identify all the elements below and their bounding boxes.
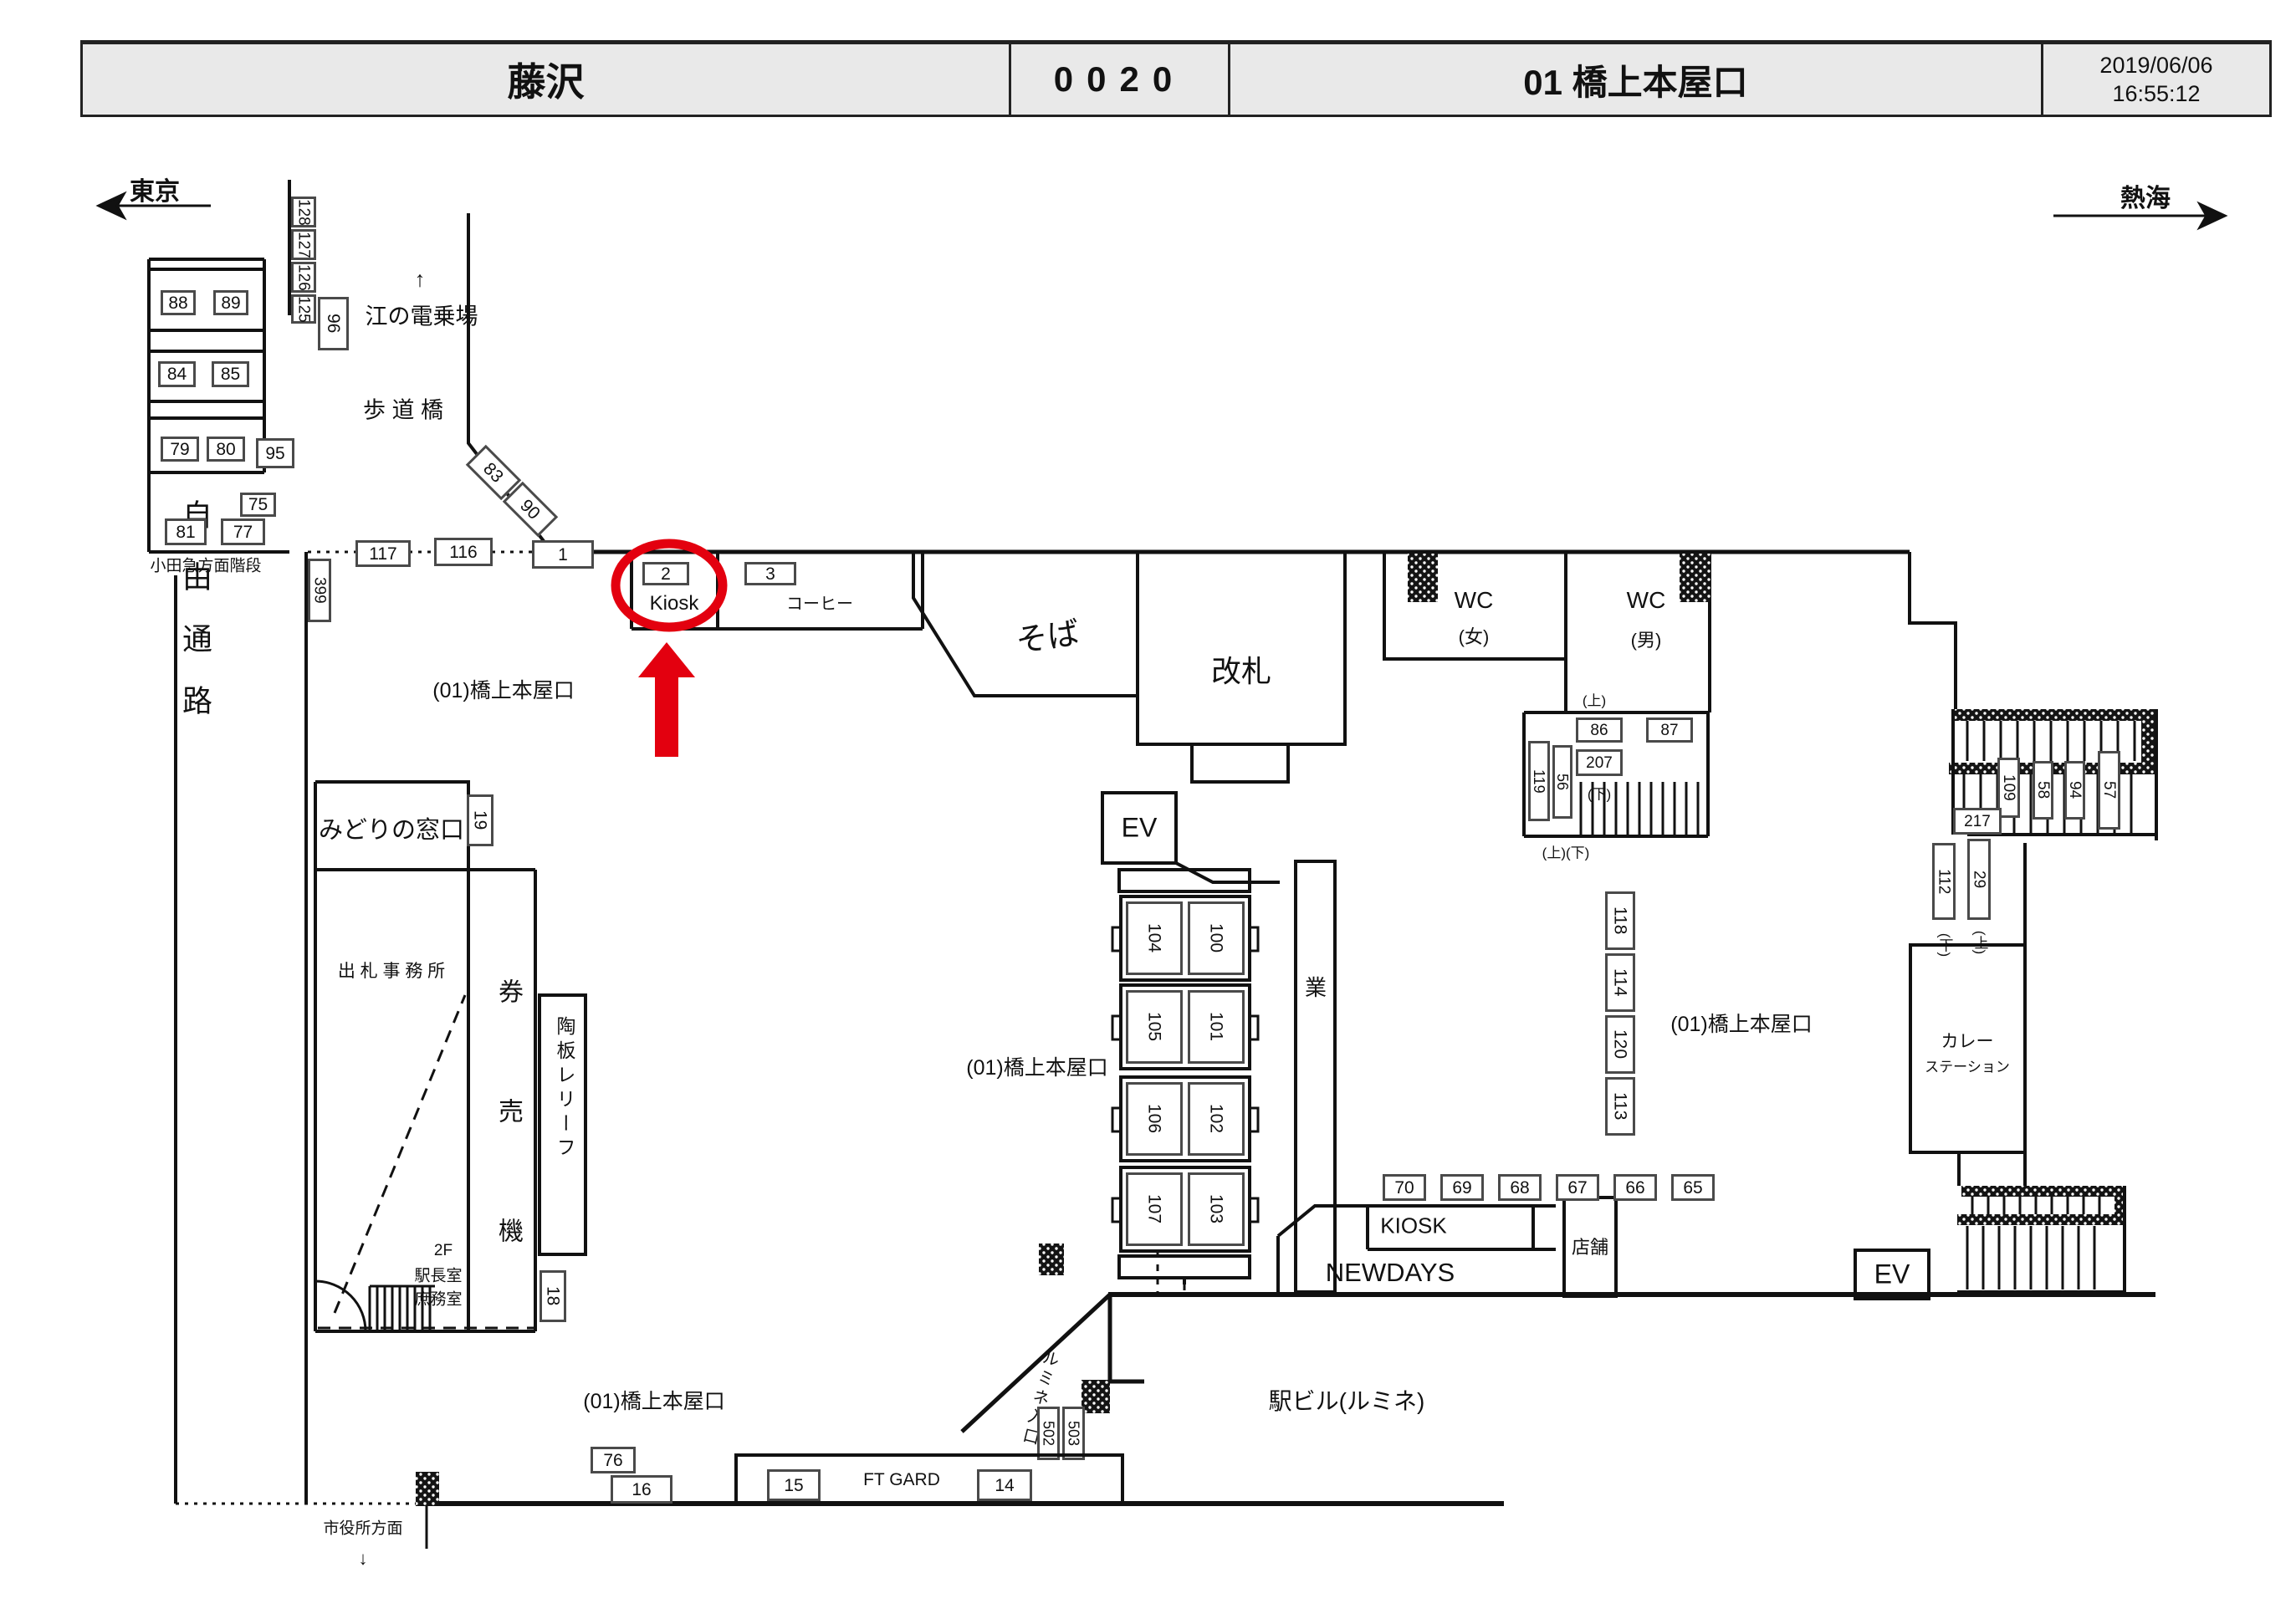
camera-box-102[interactable]: 102	[1188, 1082, 1245, 1156]
camera-box-29[interactable]: 29	[1967, 839, 1991, 920]
label-ev-2: EV	[1874, 1259, 1910, 1290]
camera-box-84[interactable]: 84	[158, 361, 196, 387]
camera-box-125[interactable]: 125	[291, 294, 316, 324]
camera-box-2-selected[interactable]: 2	[642, 562, 689, 585]
label-shita-stairs: (下)	[1588, 783, 1611, 804]
date-text: 2019/06/06	[2099, 51, 2212, 79]
camera-box-207[interactable]: 207	[1576, 749, 1623, 776]
camera-box-399[interactable]: 399	[308, 559, 331, 622]
label-bridge-d: (01)橋上本屋口	[583, 1385, 724, 1415]
direction-atami: 熱海	[2120, 177, 2171, 214]
camera-box-119[interactable]: 119	[1528, 741, 1550, 821]
up-arrow-enoden: ↑	[415, 267, 426, 293]
camera-box-217[interactable]: 217	[1953, 808, 2002, 835]
camera-box-81[interactable]: 81	[165, 518, 207, 545]
camera-box-1[interactable]: 1	[532, 540, 594, 569]
label-ue-right: (上)	[1970, 931, 1991, 954]
camera-box-86[interactable]: 86	[1576, 718, 1623, 743]
camera-box-106[interactable]: 106	[1126, 1082, 1183, 1156]
camera-box-502[interactable]: 502	[1037, 1407, 1060, 1460]
label-shomu: 庶務室	[414, 1287, 462, 1310]
camera-box-85[interactable]: 85	[212, 361, 249, 387]
camera-box-18[interactable]: 18	[539, 1270, 566, 1322]
camera-box-104[interactable]: 104	[1126, 901, 1183, 975]
camera-box-65[interactable]: 65	[1671, 1174, 1715, 1201]
label-enoden: 江の電乗場	[366, 299, 478, 331]
camera-box-70[interactable]: 70	[1383, 1174, 1426, 1201]
camera-box-113[interactable]: 113	[1605, 1077, 1635, 1136]
label-shita-right: (下)	[1935, 933, 1956, 957]
camera-box-66[interactable]: 66	[1613, 1174, 1657, 1201]
label-kiosk2: KIOSK	[1380, 1213, 1446, 1239]
label-kaisatsu: 改札	[1211, 647, 1271, 691]
camera-box-95[interactable]: 95	[256, 438, 294, 468]
camera-box-67[interactable]: 67	[1556, 1174, 1599, 1201]
label-coffee: コーヒー	[786, 590, 853, 615]
label-midori: みどりの窓口	[319, 810, 464, 845]
camera-box-76[interactable]: 76	[591, 1447, 636, 1473]
label-ekicho: 駅長室	[414, 1264, 462, 1286]
camera-code: 0020	[1011, 44, 1230, 115]
header-bar: 藤沢 0020 01 橋上本屋口 2019/06/06 16:55:12	[80, 40, 2272, 117]
label-bridge-b: (01)橋上本屋口	[966, 1051, 1107, 1081]
label-gift-gard: FT GARD	[863, 1470, 940, 1490]
camera-box-56[interactable]: 56	[1552, 745, 1572, 819]
view-title: 01 橋上本屋口	[1230, 44, 2043, 115]
datetime: 2019/06/06 16:55:12	[2043, 44, 2269, 115]
label-bridge-a: (01)橋上本屋口	[432, 674, 574, 704]
label-kenbaiki: 券 売 機	[489, 978, 526, 1276]
label-wc-women: WC	[1455, 587, 1494, 614]
camera-box-79[interactable]: 79	[161, 437, 199, 462]
label-curry-2: ステーション	[1925, 1055, 2010, 1076]
camera-box-112[interactable]: 112	[1932, 843, 1956, 920]
camera-box-14[interactable]: 14	[977, 1469, 1032, 1501]
camera-box-80[interactable]: 80	[207, 437, 245, 462]
station-name: 藤沢	[83, 44, 1011, 115]
label-curry-1: カレー	[1941, 1028, 1994, 1053]
label-women: (女)	[1459, 622, 1490, 649]
camera-box-127[interactable]: 127	[291, 229, 316, 260]
camera-box-69[interactable]: 69	[1440, 1174, 1484, 1201]
camera-box-118[interactable]: 118	[1605, 891, 1635, 950]
label-ueshita: (上)(下)	[1542, 841, 1590, 862]
camera-box-116[interactable]: 116	[434, 538, 493, 566]
label-toban: 陶板レリーフ	[550, 1016, 579, 1162]
camera-box-89[interactable]: 89	[213, 290, 248, 315]
label-soba: そば	[1013, 606, 1082, 661]
label-tenpo: 店舗	[1572, 1233, 1608, 1259]
camera-box-96[interactable]: 96	[318, 297, 349, 350]
camera-box-103[interactable]: 103	[1188, 1172, 1245, 1246]
camera-box-105[interactable]: 105	[1126, 990, 1183, 1064]
time-text: 16:55:12	[2112, 79, 2200, 108]
label-ekibiru: 駅ビル(ルミネ)	[1269, 1383, 1425, 1417]
label-men: (男)	[1631, 626, 1662, 652]
label-ev-1: EV	[1122, 813, 1158, 844]
camera-box-107[interactable]: 107	[1126, 1172, 1183, 1246]
camera-box-88[interactable]: 88	[161, 290, 196, 315]
label-wc-men: WC	[1627, 587, 1666, 614]
camera-box-68[interactable]: 68	[1498, 1174, 1542, 1201]
down-arrow-shiyakusho: ↓	[359, 1548, 368, 1570]
label-hodokyo: 歩 道 橋	[363, 392, 443, 425]
station-map-screen: 藤沢 0020 01 橋上本屋口 2019/06/06 16:55:12 東京 …	[0, 0, 2296, 1624]
camera-box-15[interactable]: 15	[767, 1469, 821, 1501]
label-kiosk: Kiosk	[650, 592, 699, 615]
camera-box-101[interactable]: 101	[1188, 990, 1245, 1064]
camera-box-120[interactable]: 120	[1605, 1015, 1635, 1074]
label-shussatsu: 出 札 事 務 所	[338, 958, 445, 983]
camera-box-75[interactable]: 75	[240, 493, 276, 517]
camera-box-16[interactable]: 16	[611, 1475, 672, 1504]
label-shiyakusho: 市役所方面	[323, 1516, 402, 1539]
direction-tokyo: 東京	[130, 171, 180, 207]
camera-box-57[interactable]: 57	[2098, 751, 2120, 830]
camera-box-117[interactable]: 117	[355, 540, 411, 567]
camera-box-94[interactable]: 94	[2064, 761, 2085, 820]
label-2f: 2F	[434, 1242, 453, 1260]
label-ue-stairs: (上)	[1583, 689, 1606, 710]
camera-box-3[interactable]: 3	[744, 562, 796, 585]
camera-box-58[interactable]: 58	[2033, 761, 2053, 820]
camera-box-126[interactable]: 126	[291, 262, 316, 293]
camera-box-19[interactable]: 19	[467, 794, 493, 846]
camera-box-503[interactable]: 503	[1062, 1407, 1085, 1460]
label-gyo: 業	[1300, 976, 1331, 998]
camera-box-128[interactable]: 128	[291, 197, 316, 227]
camera-box-77[interactable]: 77	[221, 518, 265, 545]
label-bridge-c: (01)橋上本屋口	[1670, 1008, 1812, 1038]
camera-box-100[interactable]: 100	[1188, 901, 1245, 975]
camera-box-114[interactable]: 114	[1605, 953, 1635, 1012]
label-newdays: NEWDAYS	[1326, 1258, 1455, 1288]
camera-box-87[interactable]: 87	[1646, 718, 1693, 743]
